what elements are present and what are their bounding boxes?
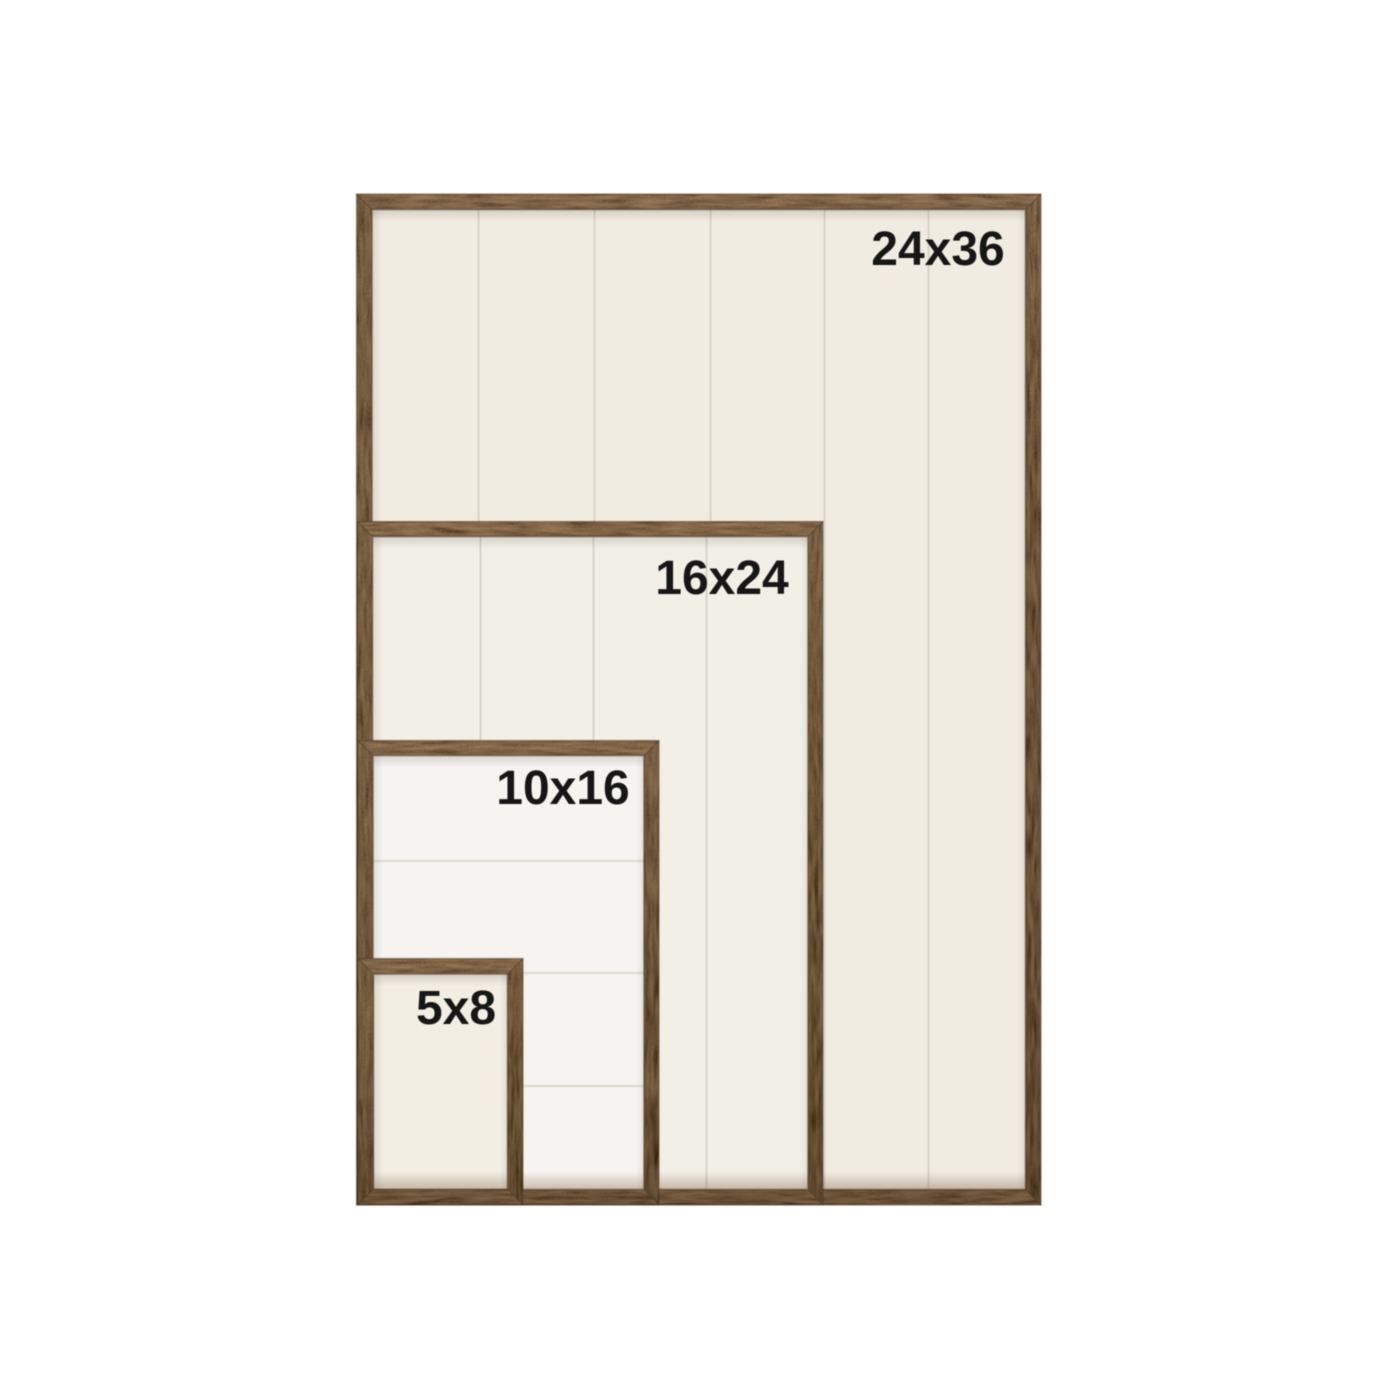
svg-text:5x8: 5x8 — [416, 982, 496, 1035]
svg-text:16x24: 16x24 — [655, 552, 789, 605]
svg-text:24x36: 24x36 — [871, 223, 1004, 276]
svg-text:10x16: 10x16 — [496, 762, 629, 815]
